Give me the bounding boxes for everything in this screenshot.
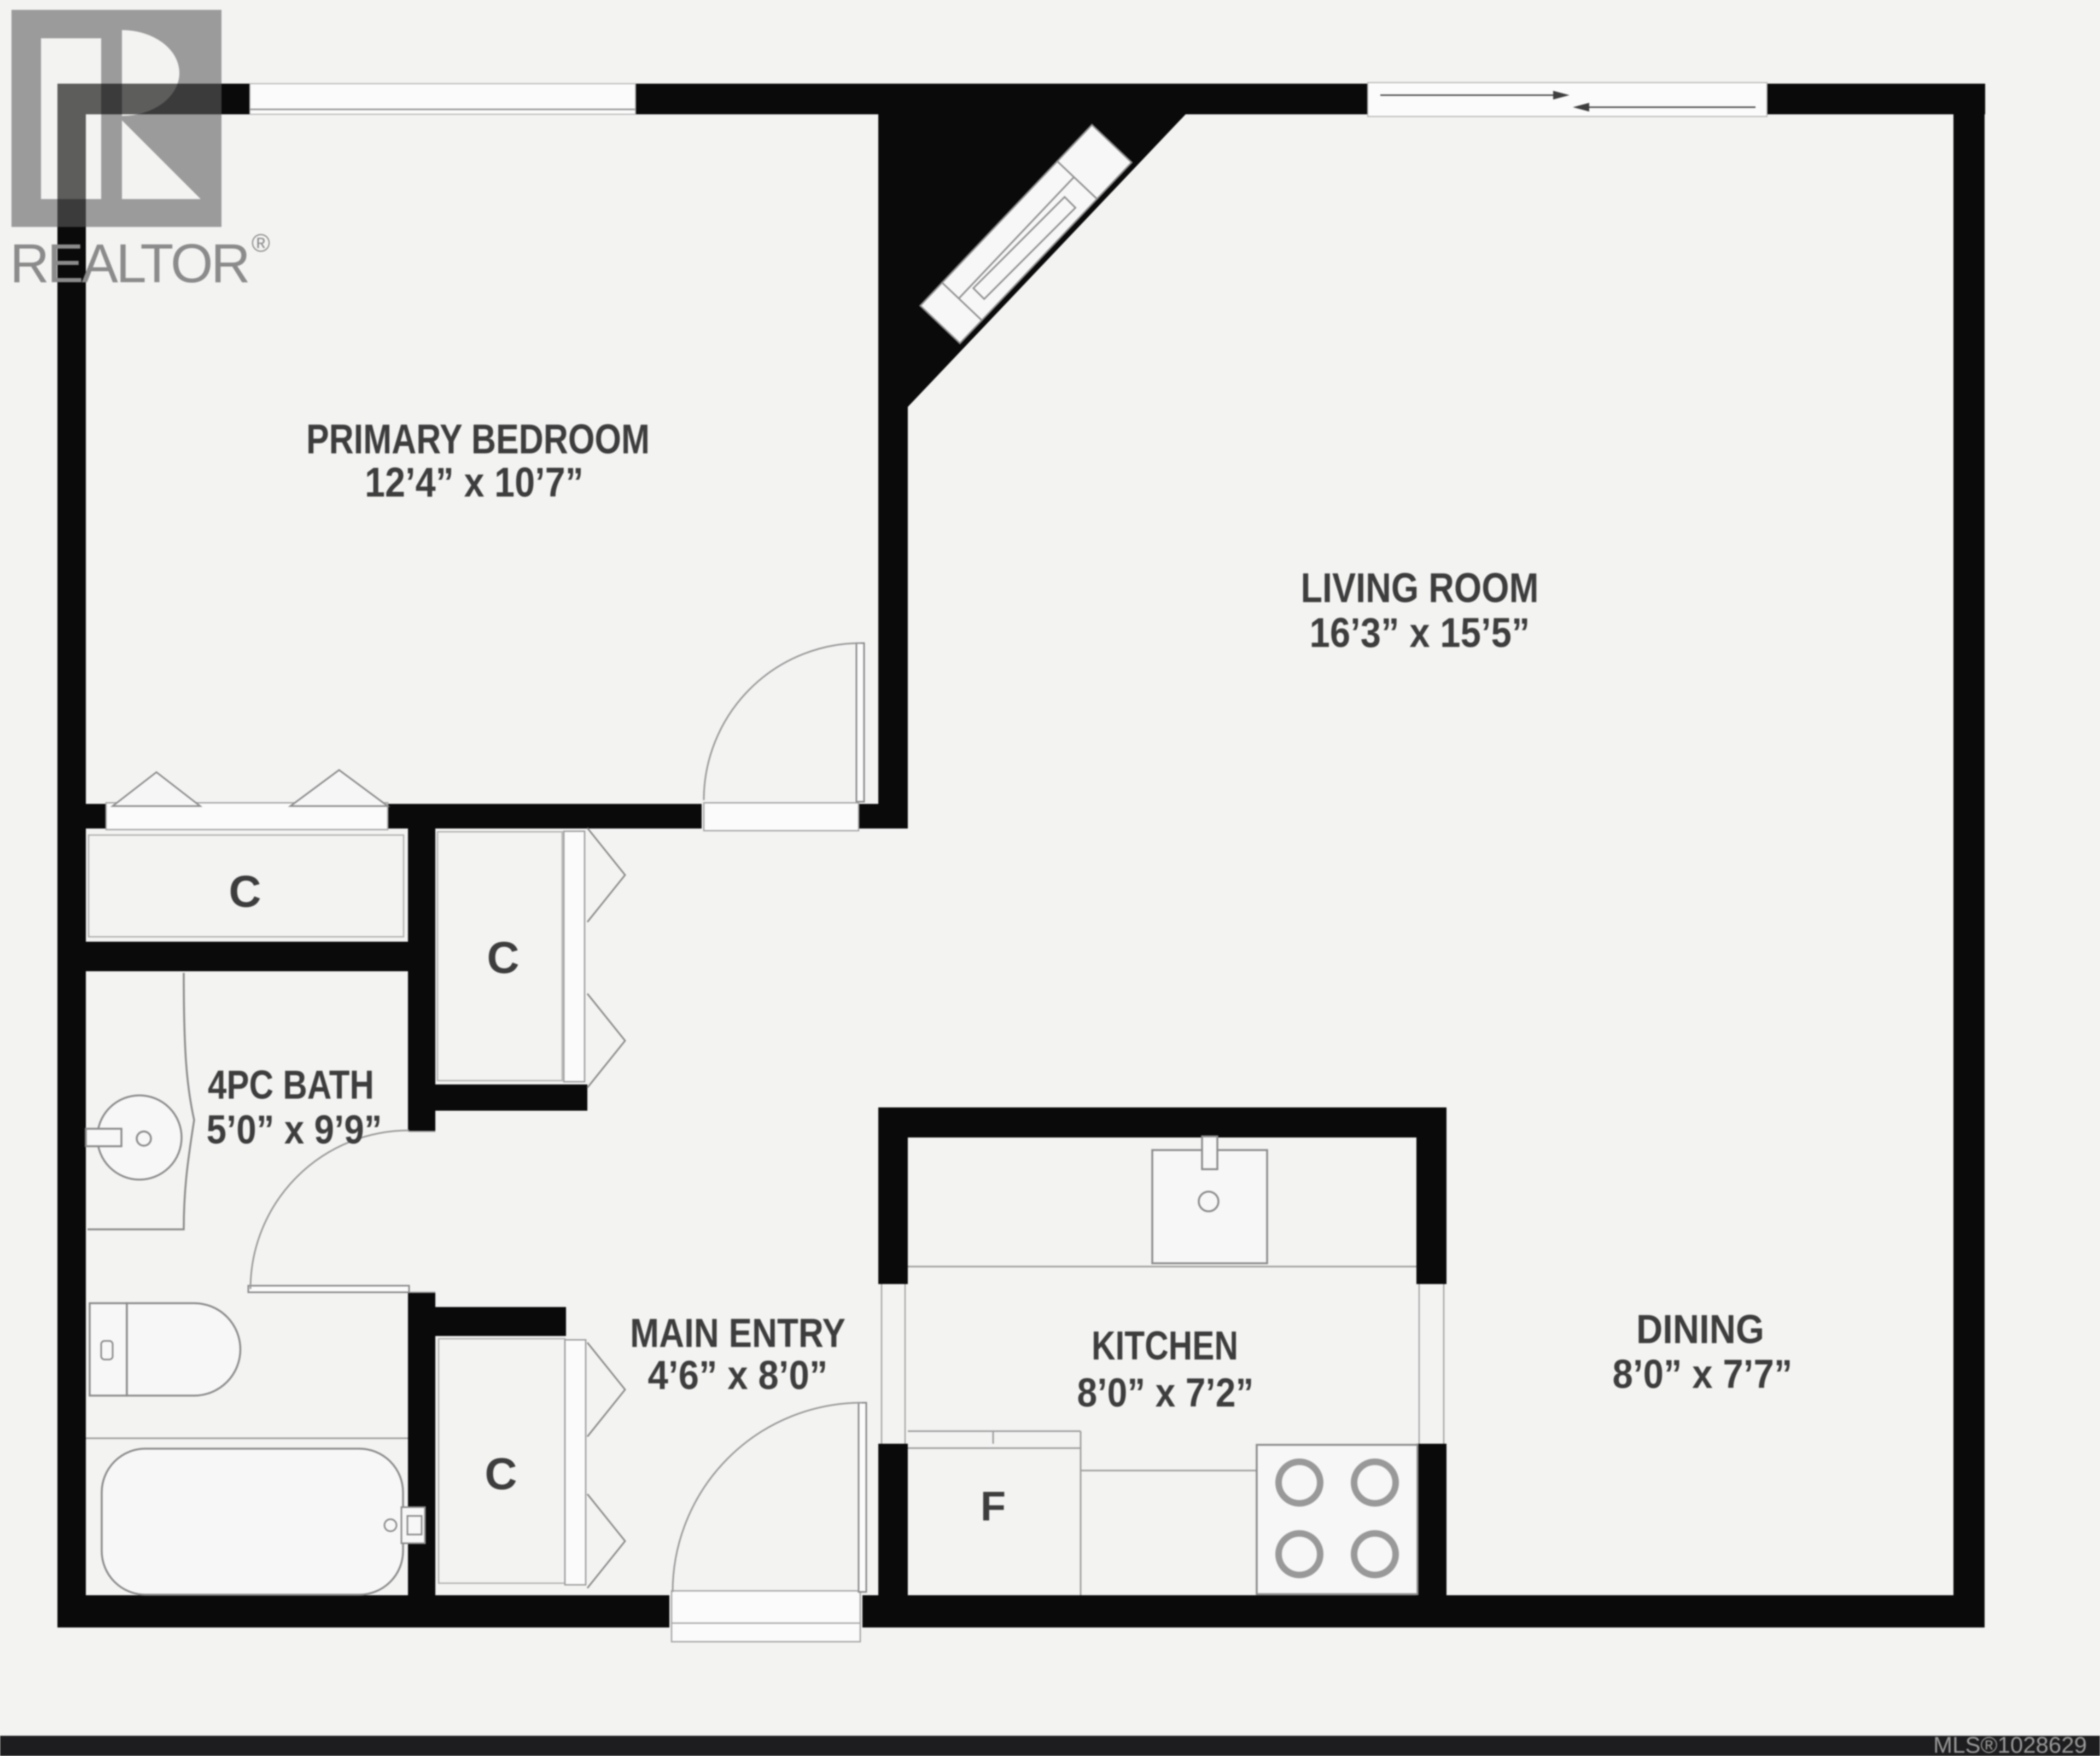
- svg-text:C: C: [229, 867, 261, 917]
- svg-text:KITCHEN: KITCHEN: [1092, 1323, 1238, 1368]
- svg-text:LIVING ROOM: LIVING ROOM: [1301, 565, 1539, 611]
- svg-text:®: ®: [252, 229, 270, 257]
- svg-text:F: F: [981, 1483, 1006, 1530]
- svg-text:8’0” x 7’2”: 8’0” x 7’2”: [1077, 1370, 1254, 1415]
- svg-text:MLS®1028629: MLS®1028629: [1933, 1732, 2087, 1756]
- svg-text:DINING: DINING: [1636, 1306, 1764, 1352]
- svg-text:8’0” x 7’7”: 8’0” x 7’7”: [1613, 1351, 1793, 1397]
- svg-text:MAIN ENTRY: MAIN ENTRY: [630, 1310, 845, 1356]
- svg-text:12’4” x 10’7”: 12’4” x 10’7”: [365, 459, 584, 506]
- svg-text:C: C: [487, 933, 519, 983]
- svg-text:4PC BATH: 4PC BATH: [208, 1062, 374, 1107]
- svg-text:4’6” x 8’0”: 4’6” x 8’0”: [648, 1352, 828, 1398]
- svg-text:PRIMARY BEDROOM: PRIMARY BEDROOM: [306, 416, 650, 463]
- svg-text:C: C: [485, 1449, 517, 1499]
- svg-text:REALTOR: REALTOR: [10, 233, 250, 294]
- svg-text:5’0” x 9’9”: 5’0” x 9’9”: [207, 1107, 382, 1152]
- svg-text:16’3” x 15’5”: 16’3” x 15’5”: [1310, 610, 1530, 656]
